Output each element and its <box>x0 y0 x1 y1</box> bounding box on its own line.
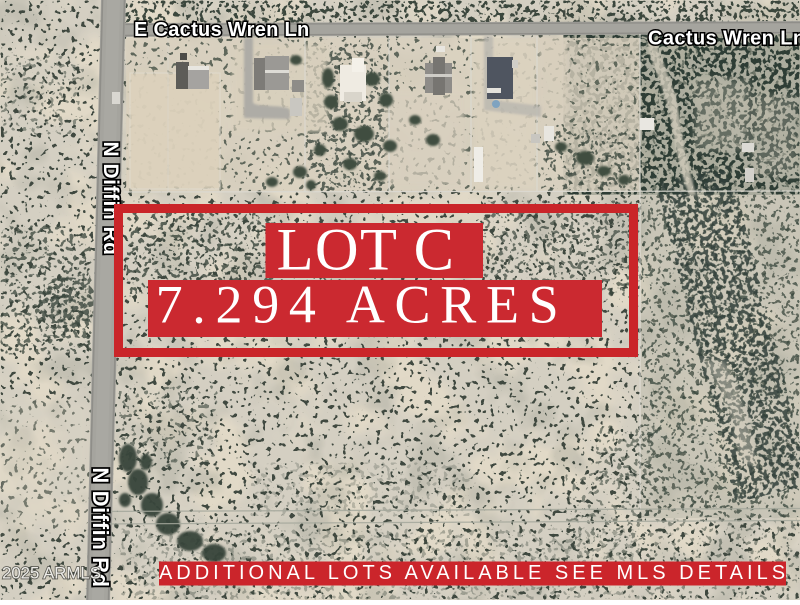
svg-text:LOT C: LOT C <box>277 217 456 284</box>
svg-text:2025 ARMLS: 2025 ARMLS <box>2 564 101 583</box>
svg-text:Cactus Wren Ln: Cactus Wren Ln <box>648 28 800 50</box>
svg-text:7.294 ACRES: 7.294 ACRES <box>156 275 569 335</box>
svg-text:E Cactus Wren Ln: E Cactus Wren Ln <box>134 19 310 41</box>
svg-text:ADDITIONAL LOTS AVAILABLE SEE: ADDITIONAL LOTS AVAILABLE SEE MLS DETAIL… <box>159 562 789 584</box>
